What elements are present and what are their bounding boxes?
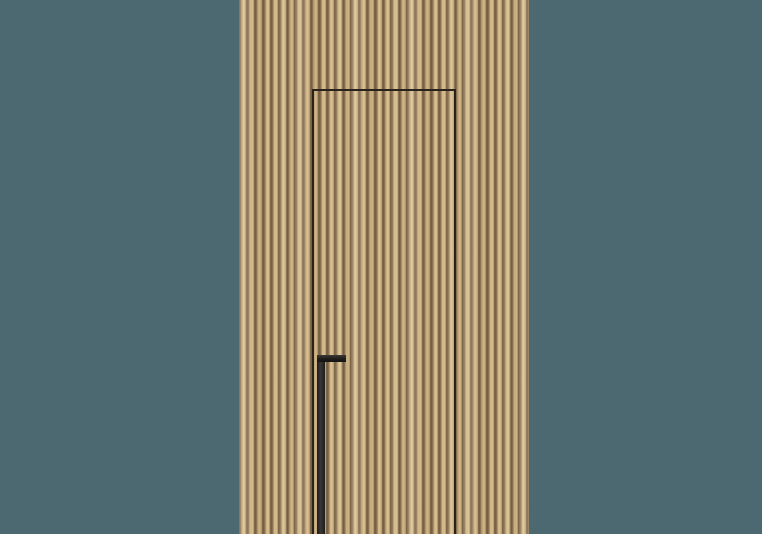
door-handle-vertical-bar xyxy=(317,355,325,534)
door-gap-outline xyxy=(312,89,456,534)
scene xyxy=(0,0,762,534)
wood-slat-wall-panel xyxy=(239,0,529,534)
door-handle-horizontal-bar xyxy=(317,355,346,362)
